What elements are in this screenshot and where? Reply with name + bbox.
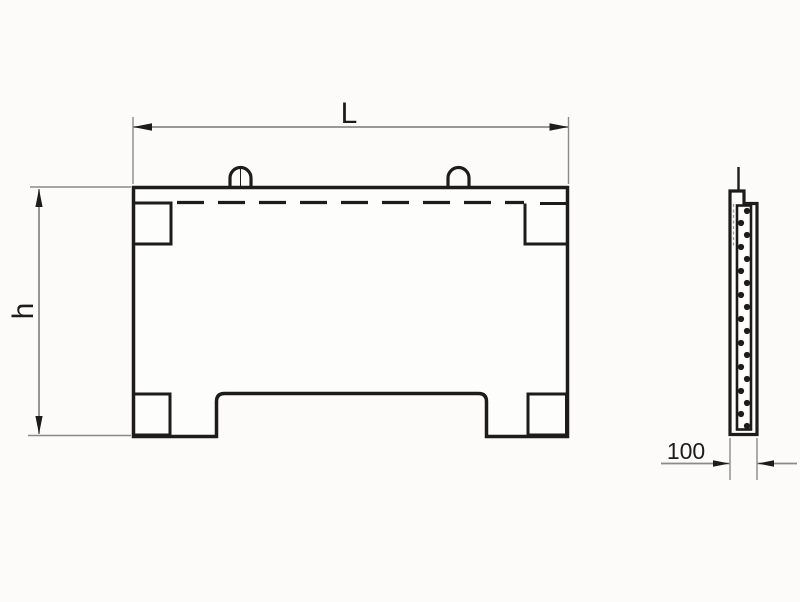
dimension-length: L: [133, 97, 569, 184]
rebar-dot: [744, 280, 750, 286]
lifting-loop-right: [448, 168, 469, 189]
arrow-right-icon: [550, 123, 569, 131]
lifting-loop-left: [230, 167, 251, 189]
rebar-dot: [744, 400, 750, 406]
arrow-up-icon: [35, 189, 42, 207]
panel-outline: [134, 188, 568, 437]
rebar-dot: [738, 292, 744, 298]
dimension-height: h: [7, 187, 131, 436]
dimension-height-label: h: [7, 303, 40, 320]
front-view: L h: [7, 97, 569, 437]
arrow-down-icon: [35, 416, 42, 434]
rebar-dot: [744, 208, 750, 214]
rebar-dot: [744, 304, 750, 310]
rebar-dot: [738, 244, 744, 250]
rebar-dot: [744, 256, 750, 262]
arrow-left-icon: [758, 460, 775, 466]
rebar-dot: [744, 352, 750, 358]
rebar-dot: [738, 364, 744, 370]
technical-drawing: L h: [0, 0, 800, 602]
rebar-dot: [738, 388, 744, 394]
side-view: 100: [661, 167, 797, 480]
rebar-dot: [744, 232, 750, 238]
rebar-dot: [738, 340, 744, 346]
dimension-thickness-label: 100: [667, 438, 705, 464]
arrow-left-icon: [133, 123, 152, 131]
rebar-dot: [738, 316, 744, 322]
rebar-dot: [744, 328, 750, 334]
dimension-length-label: L: [341, 97, 358, 130]
rebar-dot: [744, 423, 750, 429]
rebar-dot: [738, 220, 744, 226]
drawing-canvas: L h: [0, 0, 800, 602]
rebar-dot: [738, 268, 744, 274]
rebar-dot: [738, 411, 744, 417]
arrow-right-icon: [713, 460, 730, 466]
rebar-dot: [744, 376, 750, 382]
dimension-thickness: 100: [661, 438, 797, 480]
